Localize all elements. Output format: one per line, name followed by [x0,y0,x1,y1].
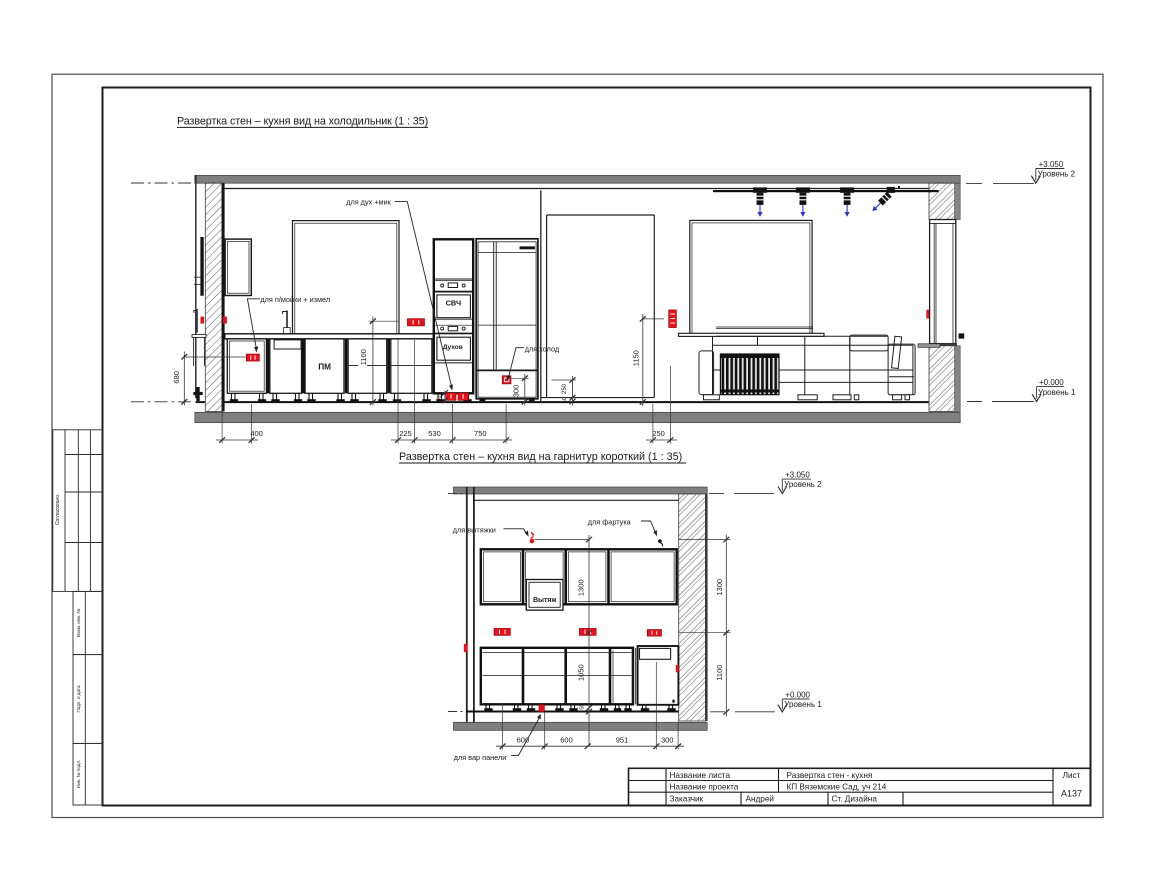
svg-text:Заказчик: Заказчик [670,795,704,804]
svg-text:Уровень 2: Уровень 2 [1038,170,1076,179]
svg-text:250: 250 [562,383,568,394]
svg-text:1300: 1300 [576,579,585,596]
svg-text:750: 750 [474,429,487,438]
svg-text:50: 50 [562,397,568,403]
svg-text:530: 530 [428,429,441,438]
svg-text:250: 250 [652,429,665,438]
svg-text:Развертка стен – кухня вид на: Развертка стен – кухня вид на холодильни… [177,115,428,127]
svg-text:для холод: для холод [525,344,560,353]
svg-text:50: 50 [438,394,444,400]
svg-text:1150: 1150 [632,350,641,366]
svg-text:600: 600 [560,735,573,744]
svg-text:Уровень 1: Уровень 1 [784,700,822,709]
svg-text:КП Вяземские Сад, уч 214: КП Вяземские Сад, уч 214 [787,783,887,792]
svg-text:300: 300 [661,735,674,744]
svg-text:СВЧ: СВЧ [446,298,462,307]
svg-text:ПМ: ПМ [318,363,331,372]
svg-text:Ст. Дизайна: Ст. Дизайна [832,795,878,804]
svg-text:Уровень 1: Уровень 1 [1038,388,1076,397]
svg-text:+0.000: +0.000 [785,690,810,699]
svg-text:600: 600 [517,735,530,744]
svg-text:Развертка стен – кухня вид на: Развертка стен – кухня вид на гарнитур к… [399,451,682,463]
svg-text:+0.000: +0.000 [1039,378,1064,387]
svg-text:Развертка стен - кухня: Развертка стен - кухня [787,771,873,780]
svg-text:для п/мойки + измел: для п/мойки + измел [260,295,330,304]
svg-text:1100: 1100 [359,349,368,365]
svg-text:225: 225 [399,429,412,438]
svg-text:+3.050: +3.050 [1039,160,1064,169]
svg-text:Подп. и дата: Подп. и дата [76,685,81,713]
svg-text:400: 400 [250,429,263,438]
svg-text:50: 50 [579,703,585,709]
svg-text:951: 951 [616,735,629,744]
svg-text:для вар панели: для вар панели [454,753,507,762]
svg-text:для дух +мик: для дух +мик [346,198,391,207]
svg-text:Название листа: Название листа [670,771,731,780]
svg-text:1050: 1050 [576,664,585,681]
svg-text:для фартука: для фартука [588,518,632,527]
svg-text:1300: 1300 [715,579,724,596]
svg-text:Название проекта: Название проекта [670,783,739,792]
svg-text:Уровень 2: Уровень 2 [784,480,822,489]
svg-text:680: 680 [172,371,181,384]
svg-text:Взам. инв. №: Взам. инв. № [76,609,81,638]
svg-text:Согласовано: Согласовано [55,495,61,525]
svg-text:Инв. № подл.: Инв. № подл. [76,760,81,789]
svg-text:А137: А137 [1061,789,1082,799]
svg-text:Андрей: Андрей [746,795,774,804]
svg-text:Духов: Духов [443,344,463,351]
svg-text:Лист: Лист [1063,771,1081,780]
svg-text:1100: 1100 [715,665,724,681]
svg-text:для вытяжки: для вытяжки [453,525,496,534]
svg-text:300: 300 [512,385,521,398]
svg-text:Вытяж: Вытяж [533,597,558,604]
svg-text:+3.050: +3.050 [785,470,810,479]
